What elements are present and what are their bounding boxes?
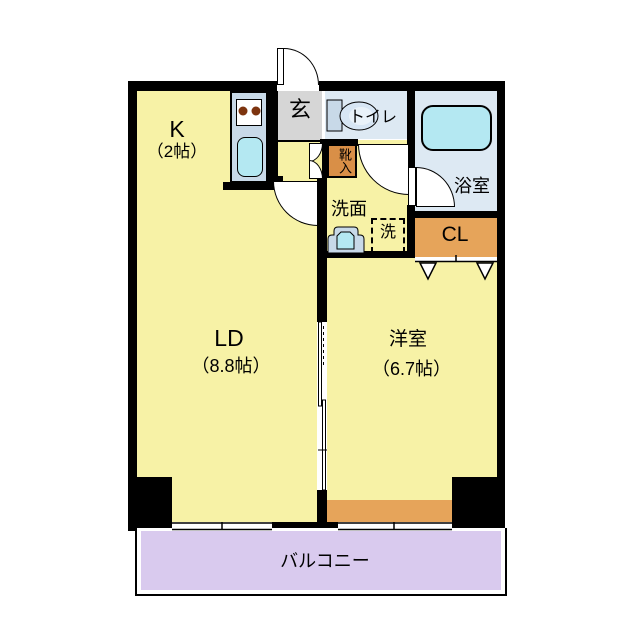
kitchen-sink: [237, 137, 263, 177]
wall-right: [497, 81, 505, 531]
label-kitchen-size: （2帖）: [132, 143, 222, 161]
entrance-door-swing: [284, 48, 319, 85]
wall-divider-upper: [317, 176, 327, 322]
label-living-dining: LD: [199, 326, 259, 350]
balcony-sill-strip: [326, 500, 452, 523]
wall-kitchen-hall: [268, 91, 278, 186]
label-living-dining-size: （8.8帖）: [186, 357, 276, 376]
label-shoe-cabinet: 靴入: [332, 144, 354, 178]
floor-plan: K （2帖） 玄 トイレ 浴室 靴入 洗面 洗 CL LD （8.8帖） 洋室 …: [0, 0, 640, 640]
label-western-room: 洋室: [380, 330, 436, 350]
wall-bath-closet: [415, 211, 497, 218]
label-balcony: バルコニー: [268, 552, 382, 571]
wall-top-left: [128, 81, 277, 91]
bathtub: [421, 105, 492, 151]
wall-divider-lower: [317, 490, 327, 523]
label-bathroom: 浴室: [443, 177, 501, 196]
pillar-bottom-right: [452, 477, 505, 531]
label-washing-machine: 洗: [378, 225, 398, 242]
stove-top: [236, 99, 262, 126]
label-entrance: 玄: [278, 98, 322, 121]
label-toilet: トイレ: [340, 110, 406, 127]
bathroom-door-leaf: [408, 167, 416, 206]
label-kitchen: K: [147, 117, 207, 141]
entrance-door-leaf: [277, 48, 284, 85]
label-washroom: 洗面: [321, 200, 377, 219]
label-closet: CL: [432, 224, 478, 246]
pillar-bottom-left: [128, 477, 172, 531]
entrance-step-line: [278, 140, 322, 142]
label-western-room-size: （6.7帖）: [372, 360, 450, 379]
